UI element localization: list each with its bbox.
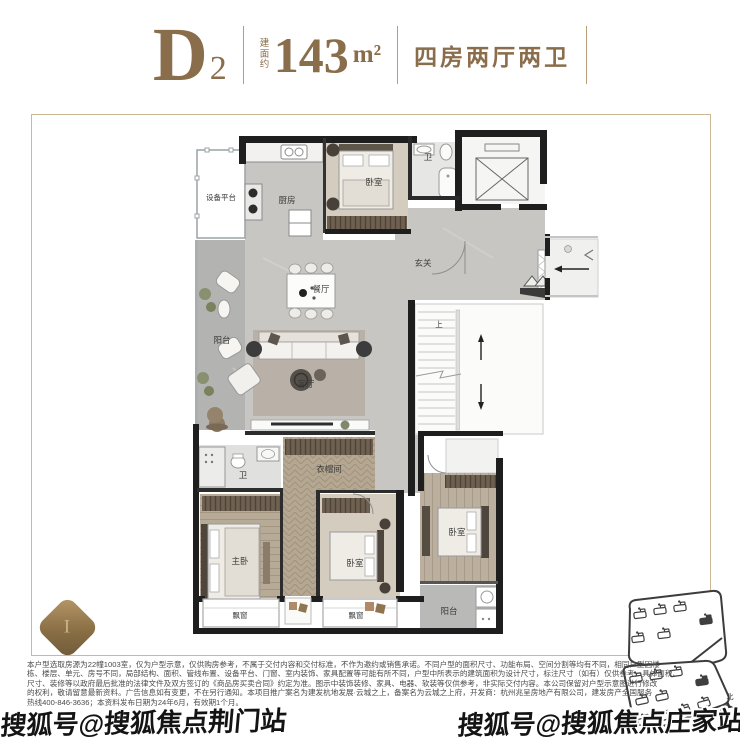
room-label-bedroom-top: 卧室 (365, 177, 383, 187)
area-value: 143 (274, 33, 349, 78)
room-label-balcony-bottom: 阳台 (440, 606, 457, 616)
room-label-bedroom-bottom: 卧室 (346, 558, 364, 568)
watermark-bottom-left: 搜狐号@搜狐焦点荆门站 (0, 701, 288, 739)
area-prefix: 建面约 (260, 39, 271, 71)
room-label-bath-mid: 卫 (239, 470, 248, 480)
unit-number: 2 (210, 52, 227, 86)
stairs-up-label: 上 (435, 320, 443, 329)
room-label-balcony-left: 阳台 (213, 335, 230, 345)
layout-description: 四房两厅两卫 (414, 38, 570, 72)
brand-badge-glyph: I (64, 616, 70, 638)
disclaimer-line: 的权利，敬请留意最新资料。广告信息如有变更，不在另行通知。本项目推广案名为建发杭… (27, 688, 715, 697)
header-divider (397, 26, 398, 84)
room-label-dining: 餐厅 (312, 284, 330, 294)
room-label-bedroom-right: 卧室 (448, 527, 466, 537)
header: D 2 建面约 143 m² 四房两厅两卫 (0, 24, 740, 86)
room-label-foyer: 玄关 (414, 258, 432, 268)
disclaimer-line: 栋、楼层、单元、房号不同，局部结构、面积、管线布置、设备平台、门窗、室内装饰、家… (27, 669, 715, 678)
area-group: 建面约 143 m² (260, 33, 381, 78)
cloakroom-wardrobe (285, 439, 373, 455)
room-label-bath-top: 卫 (424, 152, 433, 162)
unit-letter: D (153, 24, 208, 86)
bay-window-label-1: 飘窗 (233, 610, 248, 620)
room-label-cloakroom: 衣帽间 (316, 464, 342, 474)
area-unit: m² (353, 41, 381, 69)
floorplan: 设备平台 厨房 卧室 卫 玄关 餐厅 客厅 阳台 卫 衣帽间 主卧 卧室 卧室 … (193, 128, 600, 648)
page: D 2 建面约 143 m² 四房两厅两卫 (0, 0, 740, 739)
room-label-living: 客厅 (297, 379, 315, 389)
watermark-bottom-right: 搜狐号@搜狐焦点庄家站 (456, 701, 740, 739)
header-divider (586, 26, 587, 84)
disclaimer: 本户型选取房源为22幢1003室，仅为户型示意，仅供购房参考，不属于交付内容和交… (27, 660, 715, 707)
room-label-equipment-platform: 设备平台 (206, 192, 236, 202)
unit-code: D 2 (153, 24, 227, 86)
bay-window-label-2: 飘窗 (349, 610, 364, 620)
disclaimer-line: 尺寸、装修等以政府最后批准的法律文件及双方签订的《商品房买卖合同》约定为准。图示… (27, 679, 715, 688)
disclaimer-line: 本户型选取房源为22幢1003室，仅为户型示意，仅供购房参考，不属于交付内容和交… (27, 660, 715, 669)
header-divider (243, 26, 244, 84)
room-label-master-bedroom: 主卧 (231, 556, 249, 566)
room-label-kitchen: 厨房 (278, 195, 295, 205)
